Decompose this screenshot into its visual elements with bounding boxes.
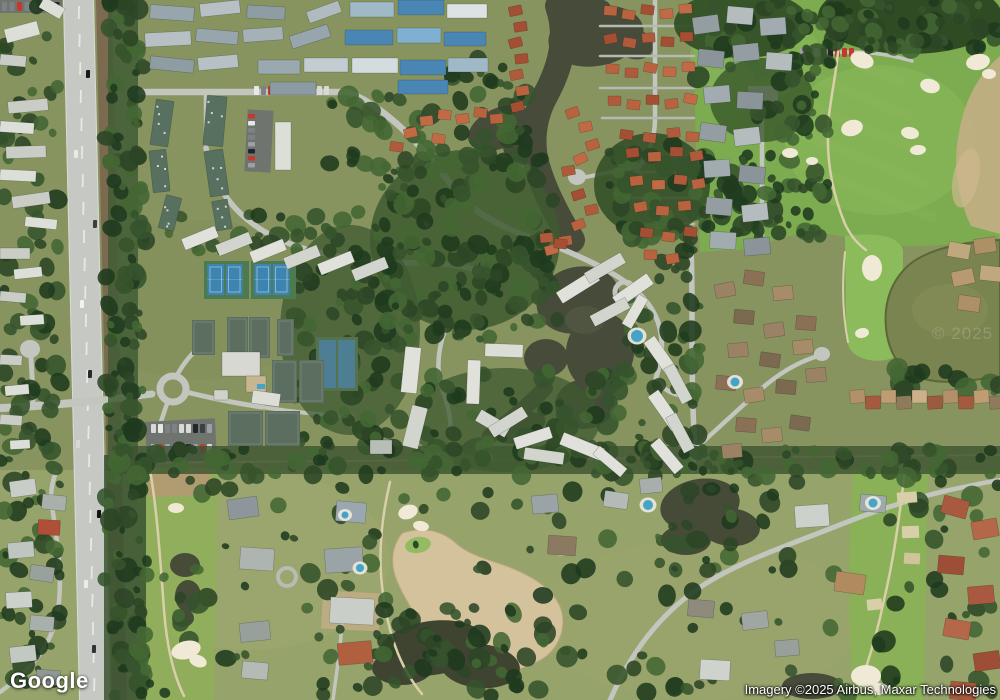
map-viewport[interactable]: Google © 2025 Imagery ©2025 Airbus, Maxa…	[0, 0, 1000, 700]
imagery-attribution: Imagery ©2025 Airbus, Maxar Technologies	[745, 682, 996, 697]
google-logo[interactable]: Google	[10, 668, 89, 694]
copyright-watermark: © 2025	[932, 324, 993, 344]
satellite-imagery	[0, 0, 1000, 700]
